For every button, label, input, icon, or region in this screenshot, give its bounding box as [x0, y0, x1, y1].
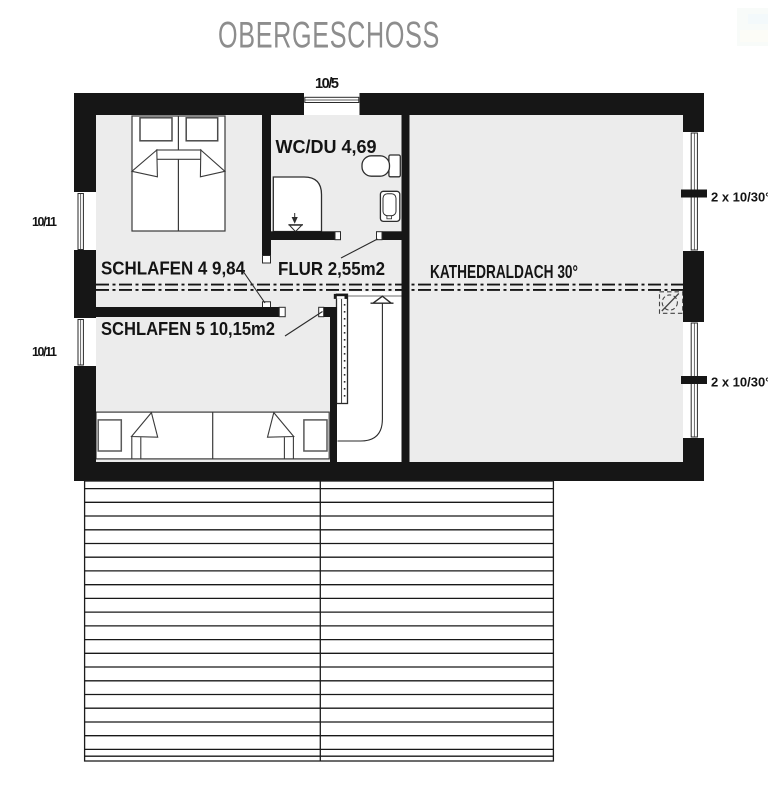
svg-text:SCHLAFEN 4 9,84: SCHLAFEN 4 9,84	[101, 258, 246, 279]
svg-text:OBERGESCHOSS: OBERGESCHOSS	[218, 15, 440, 56]
svg-text:2 x 10/30° DF: 2 x 10/30° DF	[711, 190, 768, 205]
svg-text:WC/DU 4,69: WC/DU 4,69	[276, 136, 377, 157]
svg-text:10/11: 10/11	[32, 345, 57, 359]
svg-text:10/5: 10/5	[315, 76, 339, 92]
svg-text:2 x 10/30° DF: 2 x 10/30° DF	[711, 375, 768, 390]
svg-text:SCHLAFEN 5 10,15m2: SCHLAFEN 5 10,15m2	[101, 318, 275, 339]
svg-text:KATHEDRALDACH 30°: KATHEDRALDACH 30°	[430, 262, 578, 282]
svg-text:10/11: 10/11	[32, 215, 57, 229]
svg-text:FLUR 2,55m2: FLUR 2,55m2	[278, 258, 385, 279]
